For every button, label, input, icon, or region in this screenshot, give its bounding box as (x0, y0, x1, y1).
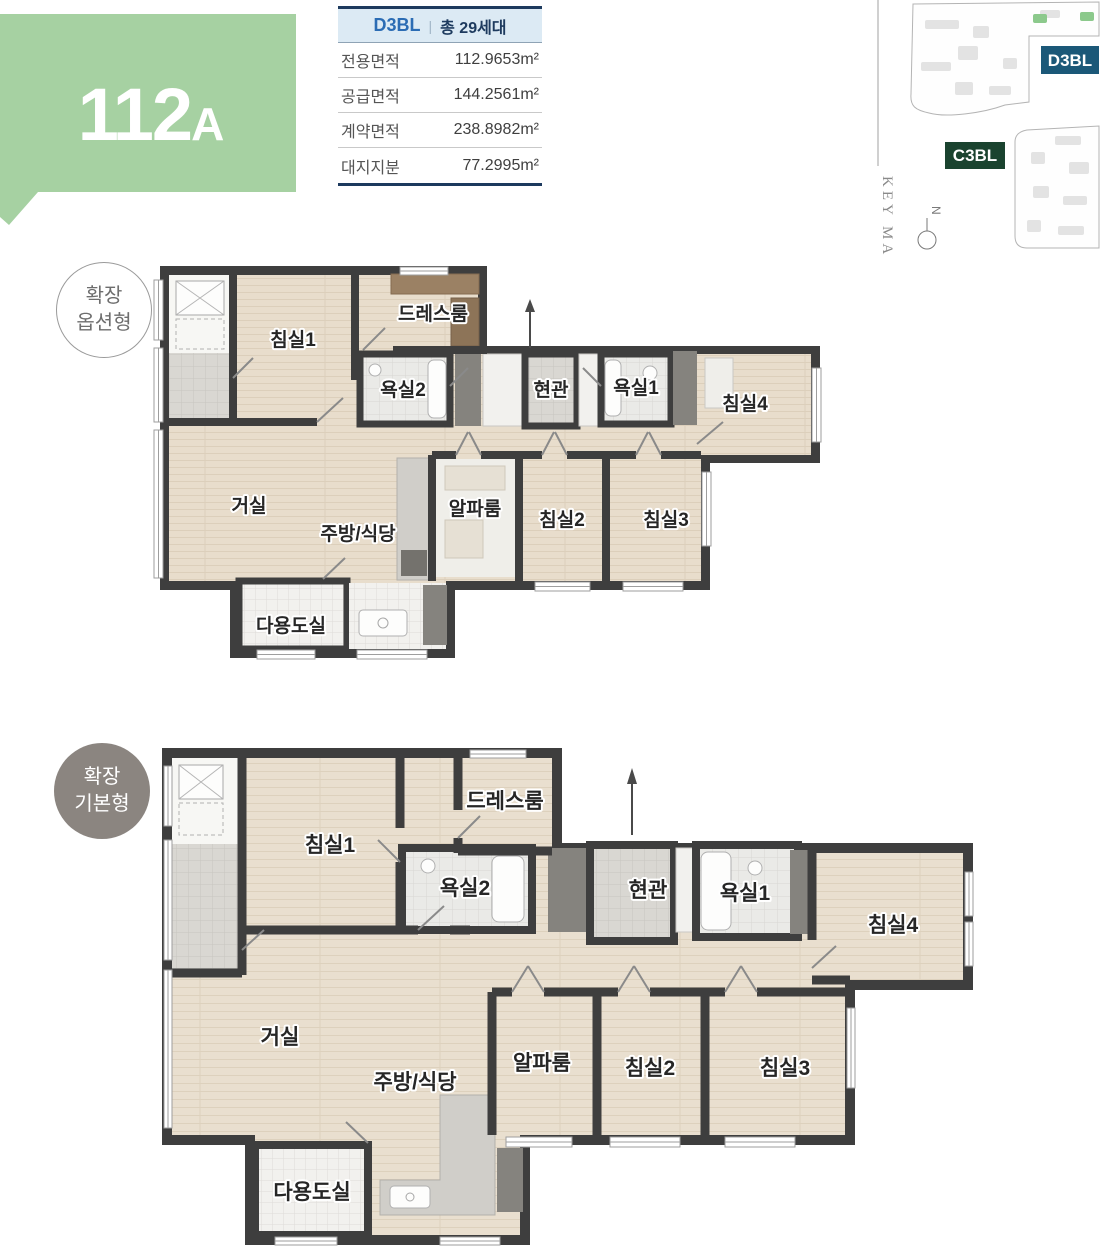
row-value: 77.2995m² (463, 157, 540, 175)
north-compass-icon (918, 218, 936, 249)
room-label-alpha: 알파룸 (449, 498, 501, 520)
header-divider: | (428, 18, 432, 34)
plan1-balcony (169, 275, 233, 426)
room-label-utility: 다용도실 (273, 1181, 350, 1204)
table-row: 대지지분 77.2995m² (338, 148, 542, 183)
row-label: 대지지분 (341, 154, 400, 178)
unit-type-badge: 112A (0, 14, 300, 234)
key-map-parcel-c (1015, 126, 1099, 248)
key-map-title: KEY MAP (879, 176, 895, 258)
row-label: 전용면적 (341, 48, 400, 72)
room-label-kitchen: 주방/식당 (320, 523, 396, 545)
badge-line: 옵션형 (76, 310, 131, 337)
block-code: D3BL (373, 15, 420, 36)
block-d-label: D3BL (1048, 51, 1092, 70)
plan2-entrance-arrow (627, 768, 637, 835)
room-label-bath1: 욕실1 (613, 377, 659, 399)
room-label-bath2: 욕실2 (440, 877, 490, 900)
total-units: 총 29세대 (440, 14, 506, 38)
row-label: 계약면적 (341, 118, 400, 142)
room-label-bedroom2: 침실2 (625, 1057, 675, 1080)
row-value: 144.2561m² (454, 86, 539, 104)
room-label-living: 거실 (232, 495, 267, 517)
room-label-utility: 다용도실 (256, 615, 326, 637)
plan-basic-badge: 확장 기본형 (54, 743, 150, 839)
room-label-bedroom1: 침실1 (305, 834, 356, 857)
room-label-entrance: 현관 (534, 379, 569, 401)
unit-info-table-header: D3BL | 총 29세대 (338, 9, 542, 43)
room-label-bedroom3: 침실3 (643, 509, 689, 531)
room-label-dressroom: 드레스룸 (398, 303, 468, 325)
floor-plan-option: 침실1 드레스룸 욕실2 현관 욕실1 침실4 거실 주방/식당 알파룸 침실2… (145, 258, 825, 668)
table-row: 전용면적 112.9653m² (338, 43, 542, 78)
room-label-bath2: 욕실2 (380, 379, 426, 401)
plan1-entrance-arrow (525, 299, 535, 348)
row-value: 112.9653m² (455, 51, 539, 69)
block-c-label: C3BL (953, 146, 997, 165)
room-label-kitchen: 주방/식당 (373, 1071, 456, 1094)
badge-line: 확장 (86, 283, 123, 310)
room-label-bedroom4: 침실4 (722, 393, 768, 415)
north-label: N (929, 206, 943, 215)
room-label-alpha: 알파룸 (513, 1052, 571, 1075)
floor-plan-basic: 침실1 드레스룸 욕실2 현관 욕실1 침실4 거실 주방/식당 알파룸 침실2… (140, 740, 990, 1259)
key-map: KEY MAP N D3BL C3BL (855, 0, 1100, 258)
plan2-balcony (172, 758, 242, 973)
highlighted-building (1080, 12, 1094, 21)
room-label-dressroom: 드레스룸 (466, 790, 543, 813)
room-label-entrance: 현관 (629, 879, 668, 902)
room-label-living: 거실 (261, 1026, 300, 1049)
row-value: 238.8982m² (454, 121, 539, 139)
room-label-bath1: 욕실1 (720, 882, 771, 905)
row-label: 공급면적 (341, 83, 400, 107)
room-label-bedroom1: 침실1 (270, 329, 316, 351)
floorplan-page: { "unit_badge": { "number": "112", "suff… (0, 0, 1100, 1259)
table-row: 계약면적 238.8982m² (338, 113, 542, 148)
unit-info-table: D3BL | 총 29세대 전용면적 112.9653m² 공급면적 144.2… (338, 6, 542, 186)
plan-option-badge: 확장 옵션형 (56, 262, 152, 358)
room-label-bedroom3: 침실3 (760, 1057, 810, 1080)
table-row: 공급면적 144.2561m² (338, 78, 542, 113)
badge-line: 기본형 (74, 791, 129, 818)
highlighted-building (1033, 14, 1047, 23)
room-label-bedroom2: 침실2 (539, 509, 585, 531)
badge-line: 확장 (84, 764, 121, 791)
room-label-bedroom4: 침실4 (868, 914, 919, 937)
